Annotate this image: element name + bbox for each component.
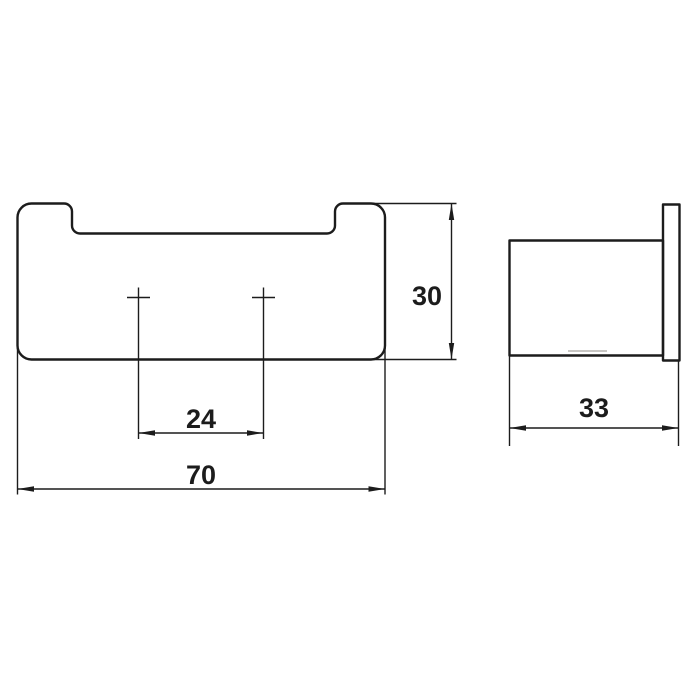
drawing-canvas: 24 70 30 (0, 0, 700, 700)
dim-33-label: 33 (579, 393, 609, 423)
dim-30-arrow-down (449, 343, 454, 360)
side-view-wall-plate (663, 205, 680, 361)
front-view-outline (18, 204, 386, 360)
dim-24-arrow-right (247, 430, 264, 435)
dim-70-arrow-left (18, 486, 35, 491)
hole-center-left (127, 288, 150, 440)
side-view-body (510, 241, 664, 356)
dim-30-label: 30 (412, 281, 442, 311)
hole-center-right (252, 288, 275, 440)
dimension-overall-depth: 33 (510, 356, 679, 446)
dimension-hole-spacing: 24 (139, 404, 264, 436)
dim-70-arrow-right (369, 486, 386, 491)
technical-drawing-svg: 24 70 30 (0, 0, 700, 700)
dim-70-label: 70 (186, 460, 216, 490)
dim-33-arrow-left (510, 425, 527, 430)
dim-30-arrow-up (449, 204, 454, 221)
dim-33-arrow-right (662, 425, 679, 430)
dim-24-arrow-left (139, 430, 156, 435)
side-view (510, 205, 680, 361)
dim-24-label: 24 (186, 404, 216, 434)
